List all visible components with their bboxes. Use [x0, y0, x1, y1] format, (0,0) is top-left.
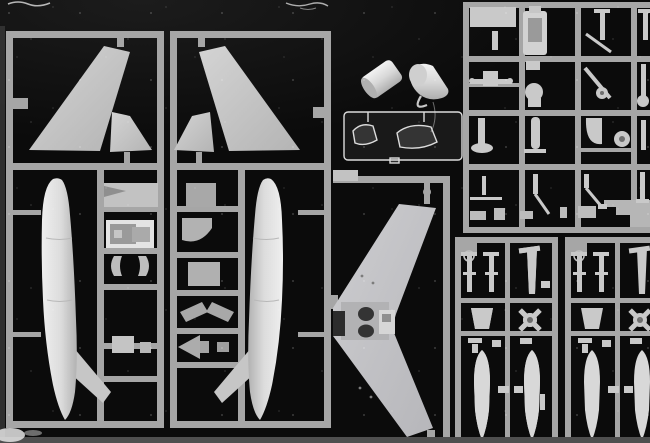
main-wheel-well-front: [358, 307, 374, 321]
nose-gear-bay: [379, 310, 395, 334]
gear-strut-2: [638, 9, 650, 40]
sprue-scene: [0, 0, 650, 443]
gear-leg-pad: [471, 118, 493, 153]
wedge-fairing-left: [180, 302, 208, 322]
intake-lip-left: [111, 256, 122, 276]
ejection-seat: [523, 6, 547, 55]
scan-edge-strip: [0, 26, 5, 438]
cockpit-tub: [106, 220, 154, 248]
intake-lip-right: [138, 256, 149, 276]
inner-tail-fin-mirror: [174, 112, 214, 152]
blank-plate: [470, 7, 516, 27]
avionics-box: [186, 183, 216, 207]
main-wheel-well-rear: [358, 325, 374, 338]
wedge-fairing-right: [206, 302, 234, 322]
scanned-photo: [0, 0, 650, 443]
exhaust-nozzle: [526, 61, 540, 70]
intake-duct: [104, 183, 158, 207]
gear-leg-diag: [585, 68, 610, 99]
sprue-a-parts: [29, 46, 158, 420]
canopy-sprue: [344, 112, 462, 163]
fuselage-half-starboard: [214, 178, 283, 420]
small-strut: [492, 31, 498, 50]
scan-bottom-strip: [0, 437, 650, 443]
zigzag-strut: [584, 174, 607, 209]
strut-with-wheel: [637, 64, 649, 107]
step-fairing: [604, 200, 650, 227]
gear-door: [524, 117, 546, 153]
quarter-bulkhead: [182, 218, 212, 242]
one-piece-swept-wing: [333, 204, 436, 437]
equipment-box: [112, 336, 151, 353]
exhaust-cone: [178, 335, 209, 359]
intake-ring-segment: [358, 58, 404, 101]
strut-foot: [636, 172, 649, 203]
gear-strut-1: [586, 9, 611, 52]
weapons-sprue-1: [455, 237, 558, 443]
vertical-stabilizer-mirror: [199, 46, 300, 151]
antenna-boom: [470, 176, 502, 200]
scan-artifacts: [8, 2, 328, 10]
seat-cushion-part: [525, 83, 543, 107]
canopy: [397, 125, 437, 148]
weapons-sprue-2: [565, 237, 650, 443]
strut-plain: [641, 120, 646, 150]
avionics-box-2: [188, 262, 220, 286]
windscreen: [353, 125, 377, 145]
main-wheel: [614, 131, 630, 147]
inner-tail-fin: [110, 112, 152, 152]
actuator-cross: [469, 71, 513, 86]
d-shaped-door: [586, 118, 602, 144]
bent-strut: [533, 174, 549, 214]
